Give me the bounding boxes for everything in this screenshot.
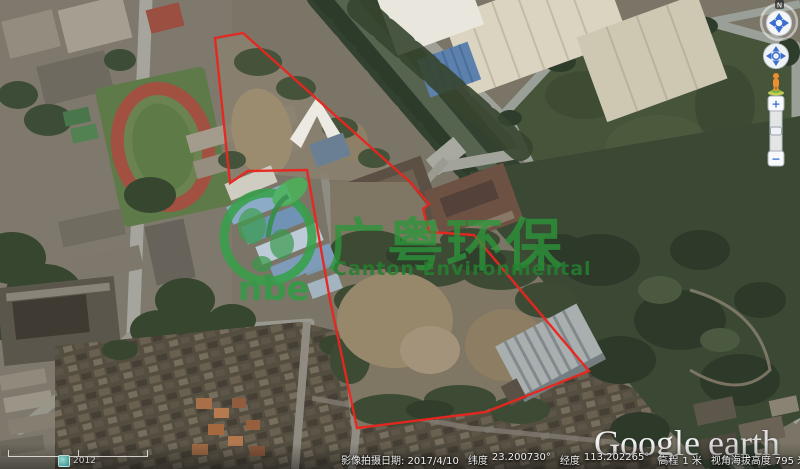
zoom-out-label: − <box>771 153 780 166</box>
latitude-readout: 纬度23.200730° <box>468 452 551 467</box>
status-readouts: 影像拍摄日期: 2017/4/10 纬度23.200730° 经度113.202… <box>341 452 800 467</box>
google-earth-window: nbe 广粤环保 Canton Environmental Googleeart… <box>0 0 800 469</box>
navigation-controls: N <box>736 0 800 178</box>
zoom-slider-handle[interactable] <box>771 127 782 135</box>
move-joystick[interactable] <box>764 44 789 69</box>
zoom-in-label: + <box>771 98 780 111</box>
clock-icon <box>58 455 70 467</box>
eye-altitude-readout: 视角海拔高度795 米 <box>711 452 800 467</box>
elevation-readout: 高程1 米 <box>658 452 702 467</box>
watermark-english-text: Canton Environmental <box>333 258 592 280</box>
historical-imagery-indicator[interactable]: 2012 <box>58 455 96 467</box>
status-bar: 2012 影像拍摄日期: 2017/4/10 纬度23.200730° 经度11… <box>0 451 800 469</box>
longitude-readout: 经度113.202265° <box>560 452 649 467</box>
zoom-slider[interactable]: + − <box>768 96 784 166</box>
history-year: 2012 <box>73 456 96 466</box>
north-label: N <box>777 2 782 10</box>
watermark-logo-text: nbe <box>238 269 310 309</box>
pegman-icon[interactable] <box>768 73 784 96</box>
imagery-date: 影像拍摄日期: 2017/4/10 <box>341 452 459 467</box>
look-joystick[interactable]: N <box>761 0 797 40</box>
